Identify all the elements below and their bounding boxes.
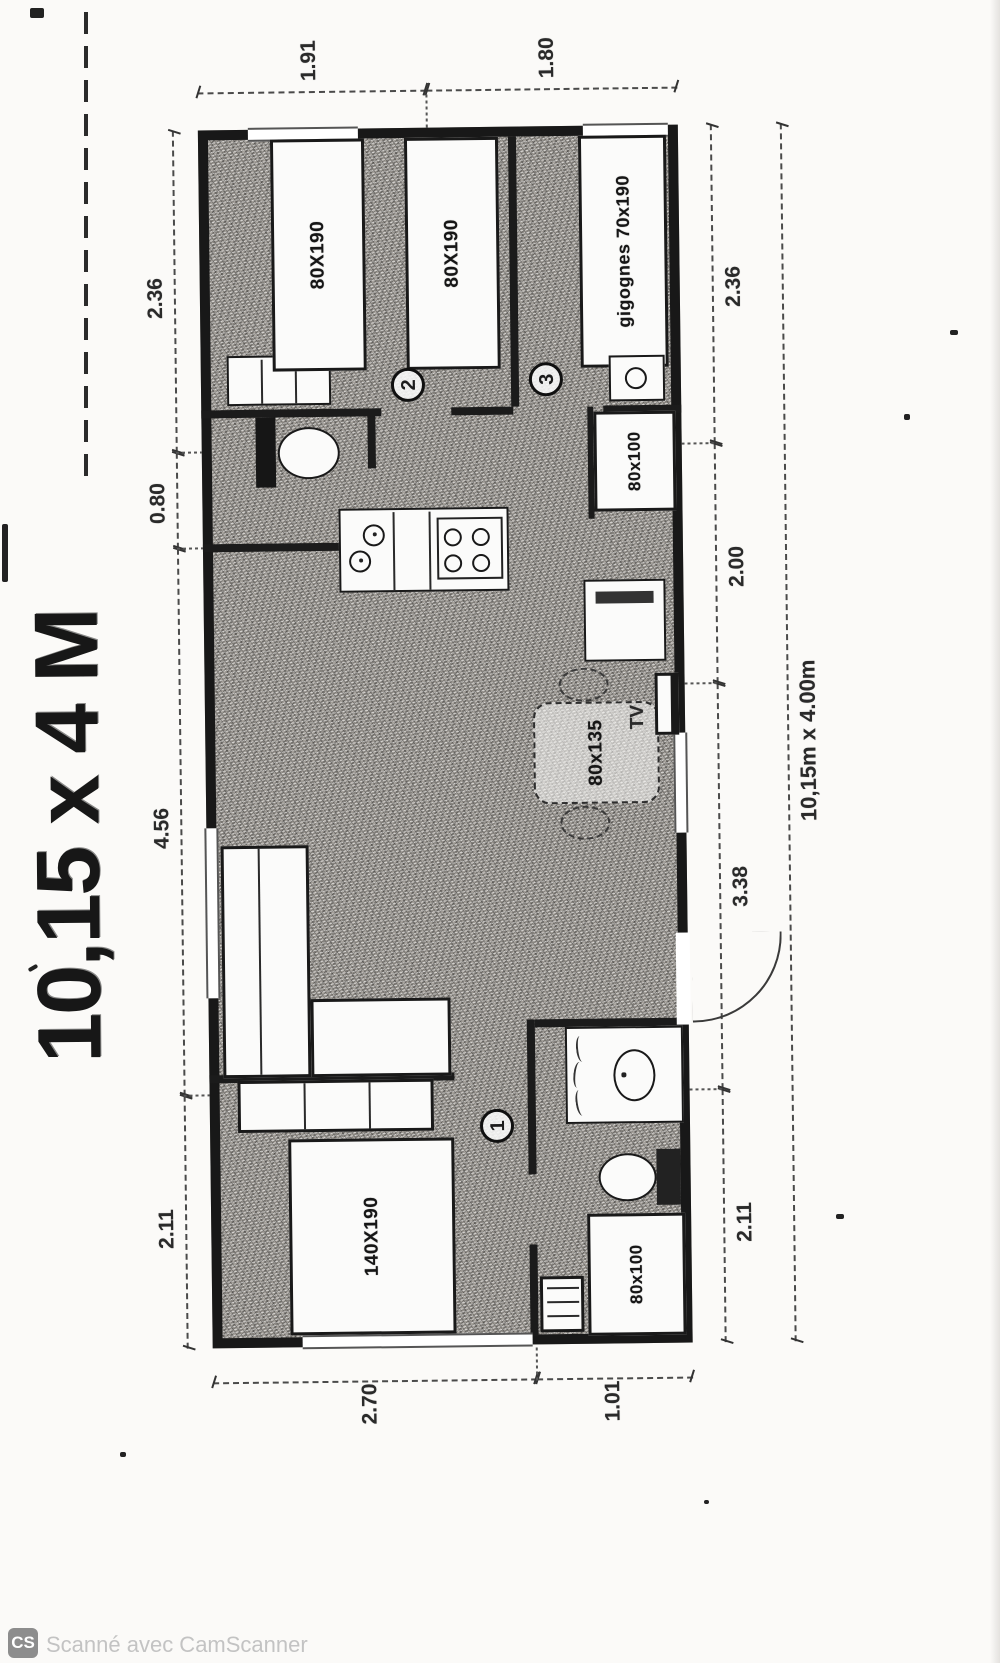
dim-line [710, 124, 716, 443]
wardrobe-bedroom1 [237, 1079, 434, 1133]
dim-line [426, 87, 677, 92]
sink-basin-icon [363, 524, 385, 546]
sink-icon-bathroom [613, 1049, 656, 1102]
tv-unit [654, 673, 679, 735]
window-living [204, 828, 220, 998]
shower-room: 80x100 [593, 411, 676, 512]
wall-bedroom2 [451, 407, 513, 416]
dim-label: 4.56 [150, 808, 174, 849]
counter-seam [429, 512, 432, 590]
dim-extension [176, 451, 202, 453]
dim-extension [177, 547, 203, 549]
scan-speck [904, 414, 910, 420]
bathroom-cupboard [540, 1276, 585, 1333]
scan-speck [120, 1452, 126, 1457]
scan-speck [2, 524, 8, 582]
dim-extension [184, 1094, 210, 1096]
vanity-bathroom [565, 1026, 684, 1124]
sofa-arm [310, 997, 451, 1077]
mirror-icon [574, 1089, 588, 1116]
mirror-icon [575, 1035, 588, 1062]
camscanner-watermark: Scanné avec CamScanner [46, 1632, 308, 1658]
dim-line [176, 453, 179, 549]
toilet-tank-bathroom [656, 1149, 681, 1205]
dim-label: 0.80 [146, 483, 170, 524]
window-dining [673, 733, 688, 833]
dim-label: 2.36 [722, 266, 746, 307]
overall-dim-label: 10,15m x 4.00m [794, 659, 822, 821]
scanned-floor-plan-page: 10,15 x 4 M 2.11 4.56 0.80 2.36 1.91 1.8… [0, 0, 1000, 1663]
dim-extension [682, 442, 714, 444]
scan-edge-shadow [990, 0, 1000, 1663]
cupboard-line [547, 1301, 579, 1303]
scan-speck [704, 1500, 709, 1504]
sofa-seam [258, 849, 263, 1075]
shower-bathroom-label: 80x100 [626, 1244, 647, 1304]
dim-extension [690, 1088, 722, 1090]
wall-bathroom [529, 1244, 538, 1336]
bed-master: 140X190 [288, 1137, 456, 1335]
dim-label: 2.11 [155, 1209, 179, 1249]
dim-line [722, 1089, 727, 1342]
scan-speck [950, 330, 958, 335]
hob-icon [437, 517, 504, 580]
cupboard-line [547, 1287, 579, 1289]
faucet-dot [621, 1072, 626, 1077]
entrance-door-opening [676, 933, 691, 1025]
toilet-tank-wc [255, 418, 276, 488]
cabinet-door-line [596, 591, 654, 604]
dim-label: 3.38 [729, 866, 753, 907]
counter-seam [393, 512, 396, 590]
dim-line [197, 90, 426, 95]
plan-title: 10,15 x 4 M [14, 483, 129, 1064]
scan-speck [30, 8, 44, 18]
dim-label: 1.80 [535, 37, 559, 78]
dim-line [172, 131, 178, 453]
dim-label: 2.11 [733, 1202, 757, 1242]
wardrobe-shelf-line [368, 1082, 371, 1128]
dim-line [717, 683, 724, 1089]
dim-label: 1.01 [601, 1380, 625, 1421]
tv-label: TV [627, 705, 649, 730]
dim-label: 2.00 [725, 546, 749, 587]
kitchen-counter [338, 507, 509, 593]
wardrobe-shelf-line [303, 1083, 306, 1129]
scan-speck [836, 1214, 844, 1219]
washbasin-bedroom3 [609, 355, 666, 402]
cupboard-line [547, 1315, 579, 1317]
camscanner-badge-icon: CS [8, 1628, 38, 1658]
dim-label: 2.70 [358, 1383, 382, 1424]
bed-single-b-label: 80X190 [441, 219, 464, 288]
dim-label: 2.36 [144, 278, 168, 319]
shower-bathroom: 80x100 [587, 1213, 686, 1336]
dining-table-label: 80x135 [585, 719, 608, 786]
dim-extension [425, 92, 427, 128]
floor-plan: 2.11 4.56 0.80 2.36 1.91 1.80 2.70 1.01 … [136, 1, 833, 1429]
bed-gigognes: gigognes 70x190 [578, 135, 669, 368]
wall-wc [367, 411, 376, 468]
bed-single-a: 80X190 [270, 138, 367, 371]
overall-dim-line [780, 123, 797, 1341]
entrance-door-arc [692, 931, 783, 1022]
dim-line [177, 549, 186, 1096]
window-bedroom1 [303, 1332, 533, 1349]
sink-basin-icon [349, 550, 371, 572]
dim-line [714, 443, 719, 683]
dim-extension [685, 682, 717, 684]
bed-gigognes-label: gigognes 70x190 [612, 175, 635, 328]
dim-label: 1.91 [297, 40, 321, 81]
shower-room-label: 80x100 [625, 431, 646, 491]
mirror-icon [572, 1061, 584, 1088]
title-leader-line [84, 12, 88, 482]
bed-single-b: 80X190 [404, 137, 501, 370]
bed-single-a-label: 80X190 [307, 221, 330, 290]
cabinet [583, 579, 666, 662]
sofa-long [221, 845, 312, 1078]
dim-line [184, 1096, 189, 1349]
bed-master-label: 140X190 [361, 1197, 384, 1277]
room-number-3: 3 [529, 362, 563, 396]
dim-extension [536, 1344, 538, 1380]
